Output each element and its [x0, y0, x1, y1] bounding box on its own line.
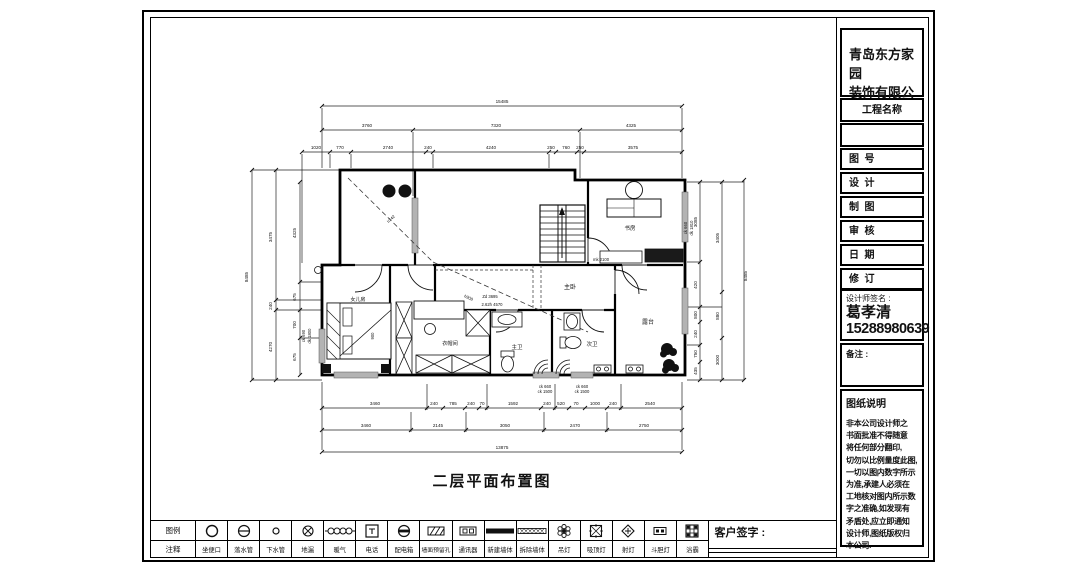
date-cell: 日 期 — [840, 244, 924, 266]
tv-cabinet — [645, 249, 683, 262]
room-label-master: 主卧 — [564, 283, 576, 291]
svg-text:4325: 4325 — [292, 227, 297, 238]
staircase — [540, 205, 585, 262]
telephone-symbol-icon — [356, 521, 387, 541]
customer-signature-cell: 客户签字 : — [708, 520, 837, 558]
design-cell: 设 计 — [840, 172, 924, 194]
window-mark: dk 1810 — [689, 220, 694, 236]
room-label-kids: 女儿房 — [350, 296, 365, 303]
wall-hole-symbol-icon — [420, 521, 451, 541]
svg-text:2470: 2470 — [570, 423, 581, 428]
right-dimension-labels: 3085 420 800 240 750 435 3405 880 3000 8… — [693, 216, 748, 374]
svg-text:3000: 3000 — [715, 354, 720, 365]
legend-col-wall-hole: 墙面预留孔 — [420, 521, 452, 557]
floor-drain-symbol-icon — [292, 521, 323, 541]
dressing-stool-icon — [425, 324, 436, 335]
project-name-value-cell — [840, 123, 924, 147]
legend-col-spotlight: 射灯 — [613, 521, 645, 557]
door-size-annotation: mk 2100 — [593, 257, 610, 262]
intercom-symbol-icon — [453, 521, 484, 541]
room-label-study: 书房 — [624, 224, 636, 232]
top-dimension-labels: 15485 3760 7320 4325 1020 770 2740 240 4… — [311, 99, 639, 150]
svg-text:240: 240 — [693, 330, 698, 338]
drawing-number-cell: 图 号 — [840, 148, 924, 170]
company-name: 青岛东方家园 装饰有限公司 — [840, 28, 924, 97]
svg-text:240: 240 — [467, 401, 475, 406]
svg-text:2740: 2740 — [383, 145, 394, 150]
radiator-symbol-icon — [324, 521, 355, 541]
designer-name: 葛孝清 — [846, 304, 922, 321]
legend-col-ceiling-light: 吸顶灯 — [581, 521, 613, 557]
plant-icon — [660, 343, 679, 374]
pendant-light-symbol-icon — [549, 521, 580, 541]
legend-col-demolished-wall: 拆除墙体 — [517, 521, 549, 557]
svg-text:675: 675 — [292, 293, 297, 301]
height-annotation: 2.62h 4570 — [482, 302, 504, 307]
floor-plan-drawing: 15485 3760 7320 4325 1020 770 2740 240 4… — [150, 17, 836, 520]
svg-text:2145: 2145 — [433, 423, 444, 428]
svg-text:1000: 1000 — [590, 401, 601, 406]
svg-text:1592: 1592 — [508, 401, 519, 406]
radiator-icon — [594, 365, 643, 373]
room-label-terrace: 露台 — [642, 318, 654, 326]
stool-icon — [399, 185, 412, 198]
svg-text:3050: 3050 — [500, 423, 511, 428]
ceiling-light-symbol-icon — [581, 521, 612, 541]
window-mark: ck 690 — [301, 329, 306, 342]
room-label-master-bath: 主卫 — [511, 343, 523, 351]
master-bath-fixtures — [492, 312, 548, 374]
bed — [327, 303, 391, 359]
dressing-table — [414, 301, 464, 319]
svg-text:13875: 13875 — [496, 445, 509, 450]
demolished-wall-symbol-icon — [517, 521, 548, 541]
bed-width-annotation: 900 — [370, 332, 375, 340]
furniture — [315, 182, 684, 375]
svg-text:880: 880 — [715, 312, 720, 320]
window-mark: ck 1500 — [538, 389, 553, 394]
svg-text:240: 240 — [430, 401, 438, 406]
svg-text:240: 240 — [424, 145, 432, 150]
chair-icon — [626, 182, 643, 199]
svg-text:7320: 7320 — [491, 123, 502, 128]
drafting-cell: 制 图 — [840, 196, 924, 218]
new-wall-symbol-icon — [485, 521, 516, 541]
legend-col-radiator: 暖气 — [324, 521, 356, 557]
svg-text:8485: 8485 — [244, 271, 249, 282]
bath-heater-symbol-icon — [677, 521, 708, 541]
sewer-symbol-icon — [260, 521, 291, 541]
svg-text:675: 675 — [292, 353, 297, 361]
slope-height-label-2: h908 — [463, 293, 474, 302]
window-mark: ck 660 — [683, 221, 688, 234]
designer-phone: 15288980639 — [846, 321, 922, 337]
svg-text:1020: 1020 — [311, 145, 322, 150]
legend-col-floor-drain: 地漏 — [292, 521, 324, 557]
legend-col-telephone: 电话 — [356, 521, 388, 557]
legend-header-col: 图例 注释 — [151, 521, 196, 557]
svg-text:520: 520 — [557, 401, 565, 406]
nightstand-icon — [322, 364, 331, 373]
revision-cell: 修 订 — [840, 268, 924, 290]
height-annotation: Zd 3695 — [482, 294, 498, 299]
svg-text:3575: 3575 — [628, 145, 639, 150]
svg-text:250: 250 — [547, 145, 555, 150]
designer-signature-label: 设计师签名 : — [846, 293, 922, 304]
svg-text:240: 240 — [268, 302, 273, 310]
project-name-cell: 工程名称 — [840, 98, 924, 122]
window-mark: dk 1800 — [307, 328, 312, 344]
legend-title: 图例 — [151, 521, 195, 541]
spotlight-symbol-icon — [613, 521, 644, 541]
svg-text:8485: 8485 — [743, 270, 748, 281]
slope-height-label-1: h742 — [386, 213, 397, 224]
svg-text:760: 760 — [562, 145, 570, 150]
svg-text:420: 420 — [693, 281, 698, 289]
column-marker-icon — [315, 267, 322, 274]
second-bath-fixtures — [556, 313, 581, 374]
svg-text:435: 435 — [693, 367, 698, 375]
review-cell: 审 核 — [840, 220, 924, 242]
room-label-second-bath: 次卫 — [586, 340, 598, 348]
stool-icon — [383, 185, 396, 198]
svg-text:70: 70 — [573, 401, 579, 406]
svg-text:4240: 4240 — [486, 145, 497, 150]
legend-col-bath-heater: 浴霸 — [677, 521, 708, 557]
recessed-light-symbol-icon — [645, 521, 676, 541]
svg-text:3475: 3475 — [268, 231, 273, 242]
svg-text:785: 785 — [449, 401, 457, 406]
svg-text:700: 700 — [292, 321, 297, 329]
signature-line — [709, 548, 836, 549]
window-mark: ck 1500 — [575, 389, 590, 394]
svg-text:3760: 3760 — [362, 123, 373, 128]
legend-subtitle: 注释 — [151, 541, 195, 557]
toilet-symbol-icon — [196, 521, 227, 541]
legend-bar: 图例 注释 坐便口 落水管 下水管 地漏 暖气 电话 配电箱 — [150, 520, 709, 558]
svg-text:2750: 2750 — [639, 423, 650, 428]
svg-text:4325: 4325 — [626, 123, 637, 128]
signature-line — [709, 552, 836, 553]
floorplan-sheet: { "title_block": { "company_line1": "青岛东… — [0, 0, 1074, 576]
distribution-box-symbol-icon — [388, 521, 419, 541]
title-block: 青岛东方家园 装饰有限公司 工程名称 图 号 设 计 制 图 审 核 日 期 修… — [836, 17, 928, 558]
svg-text:2540: 2540 — [645, 401, 656, 406]
svg-text:4270: 4270 — [268, 341, 273, 352]
legend-col-pendant-light: 吊灯 — [549, 521, 581, 557]
legend-col-new-wall: 新建墙体 — [485, 521, 517, 557]
svg-text:750: 750 — [693, 350, 698, 358]
legend-col-intercom: 通讯器 — [453, 521, 485, 557]
dimension-ticks — [250, 104, 746, 454]
legend-col-recessed-light: 斗胆灯 — [645, 521, 677, 557]
nightstand-icon — [381, 364, 390, 373]
plan-title: 二层平面布置图 — [432, 472, 551, 490]
downpipe-symbol-icon — [228, 521, 259, 541]
svg-text:770: 770 — [336, 145, 344, 150]
legend-col-distribution-box: 配电箱 — [388, 521, 420, 557]
legend-col-toilet: 坐便口 — [196, 521, 228, 557]
svg-text:240: 240 — [609, 401, 617, 406]
notes-cell: 备注 : — [840, 343, 924, 387]
designer-signature-cell: 设计师签名 : 葛孝清 15288980639 — [840, 289, 924, 341]
svg-text:70: 70 — [479, 401, 485, 406]
svg-text:3405: 3405 — [715, 232, 720, 243]
customer-signature-label: 客户签字 : — [709, 521, 836, 540]
legend-col-downpipe: 落水管 — [228, 521, 260, 557]
svg-text:3460: 3460 — [370, 401, 381, 406]
svg-text:800: 800 — [693, 311, 698, 319]
dimension-lines — [252, 106, 744, 452]
svg-text:15485: 15485 — [496, 99, 509, 104]
instructions-title: 图纸说明 — [846, 395, 920, 410]
legend-col-sewer: 下水管 — [260, 521, 292, 557]
svg-text:3460: 3460 — [361, 423, 372, 428]
svg-text:250: 250 — [576, 145, 584, 150]
svg-text:240: 240 — [543, 401, 551, 406]
room-label-cloakroom: 衣帽间 — [442, 339, 458, 347]
drawing-instructions-cell: 图纸说明 非本公司设计师之 书面批准不得随意 将任何部分翻印, 切勿以比例量度此… — [840, 389, 924, 547]
